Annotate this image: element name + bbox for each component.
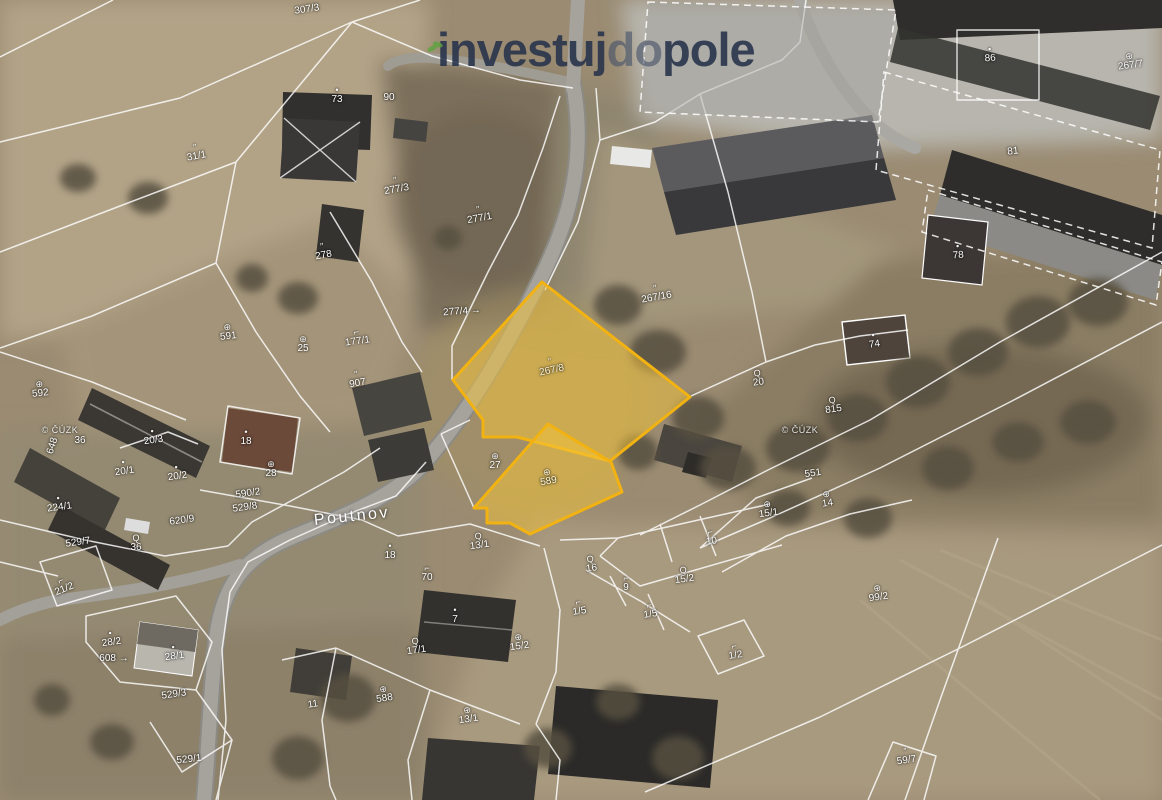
aerial-map-canvas[interactable]: 307/3•7390″31/1″277/3″277/1″278277/4 →″2…: [0, 0, 1162, 800]
brand-watermark: investujdopole: [437, 22, 755, 77]
sprout-icon: [427, 40, 443, 56]
brand-part-1: investuj: [437, 22, 607, 77]
brand-part-3: pole: [662, 22, 755, 77]
map-graphics: [0, 0, 1162, 800]
brand-part-2: do: [607, 22, 662, 77]
